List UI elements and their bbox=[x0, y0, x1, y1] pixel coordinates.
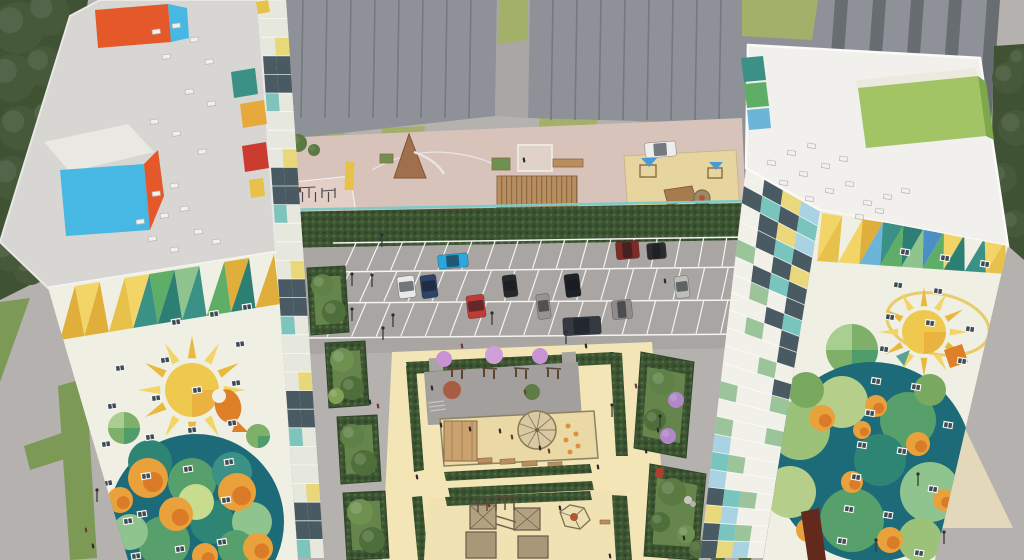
canopy-highlight bbox=[691, 542, 700, 551]
tree-highlight bbox=[662, 430, 669, 437]
facade-cell bbox=[287, 409, 302, 428]
roof-vent bbox=[136, 219, 145, 225]
facade-cell bbox=[750, 525, 768, 542]
red-bench bbox=[655, 468, 663, 479]
facade-cell bbox=[306, 484, 320, 503]
facade-cell bbox=[278, 279, 293, 298]
roof-vent bbox=[825, 188, 834, 194]
roof-vent bbox=[779, 180, 788, 186]
facade-cell bbox=[263, 74, 278, 93]
tree-highlight bbox=[647, 412, 657, 422]
facade-cell bbox=[273, 19, 288, 38]
roof-vent bbox=[172, 131, 181, 137]
roof-vent bbox=[198, 149, 207, 155]
fruit-shade bbox=[819, 414, 832, 427]
tree-highlight bbox=[325, 303, 336, 314]
facade-cell bbox=[277, 74, 292, 93]
facade-cell bbox=[708, 469, 726, 489]
yellow-bench bbox=[345, 162, 355, 190]
lamp-head bbox=[564, 330, 567, 333]
tree-highlight bbox=[653, 515, 662, 524]
tree-highlight bbox=[314, 277, 324, 287]
roof-vent bbox=[170, 183, 179, 189]
roof-vent bbox=[207, 101, 216, 107]
car bbox=[536, 293, 552, 319]
gray-highrise-mid bbox=[528, 0, 742, 124]
garden-bed bbox=[337, 415, 381, 484]
facade-cell bbox=[734, 524, 752, 541]
facade-cell bbox=[732, 541, 750, 558]
sun-bird-notch bbox=[212, 389, 226, 403]
canopy-highlight bbox=[1010, 50, 1022, 62]
stepping-stone bbox=[566, 424, 571, 429]
fruit-shade bbox=[172, 509, 189, 526]
facade-cell bbox=[267, 130, 282, 149]
tree-highlight bbox=[354, 453, 366, 465]
lawn-patch bbox=[742, 0, 818, 40]
climbing-tower bbox=[518, 536, 548, 558]
architectural-render bbox=[0, 0, 1024, 560]
bench bbox=[600, 520, 610, 524]
pergola-beam bbox=[482, 368, 497, 369]
facade-cell bbox=[290, 260, 305, 279]
lamp-head bbox=[95, 488, 98, 491]
facade-cell bbox=[302, 428, 317, 447]
facade-cell bbox=[725, 472, 744, 491]
red-shrub bbox=[443, 381, 461, 399]
canopy-pole bbox=[535, 428, 539, 432]
tree-highlight bbox=[343, 379, 354, 390]
tree-highlight bbox=[362, 530, 374, 542]
facade-cell bbox=[295, 521, 309, 540]
garden-bed bbox=[325, 341, 369, 408]
car bbox=[611, 299, 633, 320]
tree-highlight bbox=[670, 394, 677, 401]
fire-pit-center bbox=[699, 195, 705, 201]
facade-cell bbox=[297, 353, 312, 372]
facade-cell bbox=[303, 446, 317, 465]
pergola-beam bbox=[546, 368, 561, 369]
facade-cell bbox=[270, 167, 285, 186]
gap-lawn bbox=[498, 0, 528, 44]
roof-vent bbox=[901, 188, 910, 194]
facade-cell bbox=[298, 372, 313, 391]
roof-vent bbox=[205, 59, 214, 65]
stepping-stone bbox=[568, 450, 573, 455]
roof-vent bbox=[194, 229, 203, 235]
pergola-beam bbox=[450, 368, 465, 369]
tree-highlight bbox=[662, 482, 675, 495]
roof-vent bbox=[883, 194, 892, 200]
facade-cell bbox=[281, 316, 296, 335]
facade-cell bbox=[741, 474, 760, 493]
pergola-beam bbox=[514, 368, 529, 369]
facade-cell bbox=[277, 260, 292, 279]
facade-cell bbox=[282, 149, 297, 168]
parapet-box-yellow bbox=[249, 178, 265, 198]
car bbox=[615, 240, 639, 260]
facade-cell bbox=[259, 19, 274, 38]
planter-box bbox=[380, 154, 393, 163]
roof-vent bbox=[162, 54, 171, 60]
garden-sculpture bbox=[690, 501, 696, 507]
parapet-box-teal bbox=[231, 68, 258, 98]
facade-cell bbox=[293, 484, 307, 503]
roof-vent bbox=[185, 89, 194, 95]
penthouse-green bbox=[858, 76, 986, 148]
facade-cell bbox=[281, 130, 296, 149]
facade-cell bbox=[289, 242, 304, 261]
facade-cell bbox=[275, 242, 290, 261]
facade-cell bbox=[273, 205, 288, 224]
facade-cell bbox=[291, 465, 305, 484]
facade-cell bbox=[266, 112, 281, 131]
roof-vent bbox=[180, 206, 189, 212]
car bbox=[397, 275, 417, 299]
roof-vent bbox=[807, 143, 816, 149]
lamp-head bbox=[490, 311, 493, 314]
car bbox=[646, 242, 666, 260]
fruit-shade bbox=[254, 544, 269, 559]
canopy-highlight bbox=[309, 145, 315, 151]
stepping-stone bbox=[564, 438, 569, 443]
parapet-box-red bbox=[242, 142, 269, 172]
roof-vent bbox=[160, 213, 169, 219]
facade-cell bbox=[289, 428, 304, 447]
gray-highrise-left bbox=[278, 0, 497, 140]
facade-cell bbox=[284, 167, 299, 186]
garden-bed bbox=[307, 266, 349, 335]
garden-bed bbox=[343, 491, 389, 560]
tree-highlight bbox=[333, 351, 344, 362]
net-hub bbox=[570, 513, 578, 521]
facade-cell bbox=[710, 452, 729, 472]
lamp-head bbox=[380, 233, 383, 236]
roof-vent bbox=[787, 150, 796, 156]
canopy-highlight bbox=[995, 65, 1011, 81]
flowering-tree bbox=[485, 346, 503, 364]
roof-vent bbox=[805, 196, 814, 202]
facade-cell bbox=[747, 542, 765, 558]
roof-vent bbox=[152, 29, 161, 35]
fruit-shade bbox=[887, 536, 900, 549]
facade-cell bbox=[755, 493, 774, 511]
fruit-shade bbox=[860, 427, 869, 436]
facade-cell bbox=[704, 505, 722, 524]
roof-vent bbox=[767, 160, 776, 166]
fruit-shade bbox=[232, 486, 251, 505]
facade-cell bbox=[700, 540, 718, 558]
roof-vent bbox=[148, 236, 157, 242]
tree-highlight bbox=[350, 502, 362, 514]
facade-cell bbox=[294, 316, 309, 335]
facade-cell bbox=[292, 279, 307, 298]
facade-cell bbox=[279, 93, 294, 112]
car bbox=[645, 141, 677, 158]
facade-cell bbox=[752, 509, 771, 526]
car bbox=[437, 253, 468, 270]
lamp-head bbox=[370, 273, 373, 276]
bench bbox=[478, 458, 492, 464]
facade-cell bbox=[757, 477, 776, 495]
lamp-head bbox=[658, 414, 661, 417]
roof-vent bbox=[799, 171, 808, 177]
facade-cell bbox=[280, 112, 295, 131]
facade-cell bbox=[293, 298, 308, 317]
facade-cell bbox=[722, 489, 740, 508]
facade-cell bbox=[308, 521, 322, 540]
facade-cell bbox=[290, 446, 305, 465]
lamp-head bbox=[381, 326, 384, 329]
tree-highlight bbox=[343, 427, 354, 438]
canopy-highlight bbox=[1002, 114, 1020, 132]
facade-cell bbox=[716, 541, 734, 558]
foliage-blob bbox=[820, 488, 884, 552]
roof-vent bbox=[855, 214, 864, 220]
parapet-box-teal bbox=[741, 56, 766, 82]
facade-cell bbox=[299, 391, 314, 410]
facade-cell bbox=[285, 186, 300, 205]
facade-cell bbox=[275, 37, 290, 56]
facade-cell bbox=[760, 460, 779, 479]
fruit-shade bbox=[117, 496, 130, 509]
bench bbox=[500, 459, 515, 465]
tree-highlight bbox=[679, 527, 687, 535]
facade-cell bbox=[718, 524, 736, 542]
stepping-stone bbox=[574, 432, 579, 437]
facade-cell bbox=[261, 37, 276, 56]
roof-vent bbox=[821, 163, 830, 169]
lamp-head bbox=[350, 307, 353, 310]
facade-cell bbox=[307, 502, 321, 521]
facade-cell bbox=[269, 149, 284, 168]
facade-cell bbox=[301, 409, 316, 428]
facade-cell bbox=[271, 186, 286, 205]
car bbox=[420, 274, 439, 299]
stepping-stone bbox=[576, 444, 581, 449]
parapet-box-yellow bbox=[256, 0, 270, 14]
facade-cell bbox=[285, 372, 300, 391]
roof-box-cyan bbox=[60, 164, 150, 236]
roof-vent bbox=[190, 37, 199, 43]
climbing-tower bbox=[466, 532, 496, 558]
green-shrub bbox=[524, 384, 540, 400]
parapet-box-green bbox=[744, 82, 769, 108]
facade-cell bbox=[702, 523, 720, 541]
car bbox=[466, 294, 487, 319]
roof-vent bbox=[845, 181, 854, 187]
roof-vent bbox=[863, 200, 872, 206]
lamp-head bbox=[916, 472, 919, 475]
foliage-blob bbox=[788, 372, 824, 408]
parapet-box-blue bbox=[747, 108, 771, 130]
facade-cell bbox=[286, 205, 301, 224]
bench bbox=[522, 461, 537, 467]
facade-cell bbox=[294, 502, 308, 521]
central-courtyard bbox=[382, 342, 668, 560]
flowering-tree bbox=[532, 348, 548, 364]
roof-vent bbox=[152, 191, 161, 197]
garden-bed bbox=[634, 352, 694, 458]
lamp-head bbox=[391, 313, 394, 316]
facade-cell bbox=[276, 56, 291, 75]
canopy-highlight bbox=[28, 50, 48, 70]
car bbox=[564, 273, 582, 298]
tree-highlight bbox=[330, 390, 337, 397]
lamp-head bbox=[610, 403, 613, 406]
facade-cell bbox=[279, 298, 294, 317]
canopy-highlight bbox=[2, 110, 24, 132]
car bbox=[563, 316, 602, 336]
lamp-head bbox=[874, 538, 877, 541]
facade-cell bbox=[310, 539, 324, 558]
facade-cell bbox=[297, 539, 311, 558]
car bbox=[674, 275, 691, 299]
facade-cell bbox=[288, 223, 303, 242]
roof-vent bbox=[212, 239, 221, 245]
car bbox=[502, 274, 519, 298]
facade-cell bbox=[739, 491, 758, 509]
facade-cell bbox=[272, 0, 287, 19]
facade-cell bbox=[286, 391, 301, 410]
lamp-head bbox=[350, 272, 353, 275]
roof-vent bbox=[150, 119, 159, 125]
facade-cell bbox=[706, 487, 724, 506]
facade-cell bbox=[743, 457, 762, 476]
roof-vent bbox=[172, 23, 181, 29]
roof-vent bbox=[839, 156, 848, 162]
facade-cell bbox=[265, 93, 280, 112]
tree-highlight bbox=[652, 372, 664, 384]
roof-box-orange bbox=[95, 4, 171, 48]
facade-cell bbox=[295, 335, 310, 354]
lamp-head bbox=[942, 530, 945, 533]
facade-cell bbox=[283, 353, 298, 372]
facade-cell bbox=[736, 508, 754, 526]
roof-vent bbox=[875, 208, 884, 214]
facade-cell bbox=[727, 455, 746, 475]
bench-row bbox=[553, 159, 583, 167]
planter-box bbox=[492, 158, 510, 170]
flowering-tree bbox=[436, 351, 452, 367]
roof-vent bbox=[170, 247, 179, 253]
facade-cell bbox=[262, 56, 277, 75]
facade-cell bbox=[305, 465, 319, 484]
facade-cell bbox=[274, 223, 289, 242]
fruit-shade bbox=[915, 440, 927, 452]
facade-cell bbox=[720, 506, 738, 524]
parapet-box-amber bbox=[240, 100, 267, 128]
wooden-pavilion bbox=[497, 176, 577, 208]
render-canvas bbox=[0, 0, 1024, 560]
facade-cell bbox=[282, 335, 297, 354]
